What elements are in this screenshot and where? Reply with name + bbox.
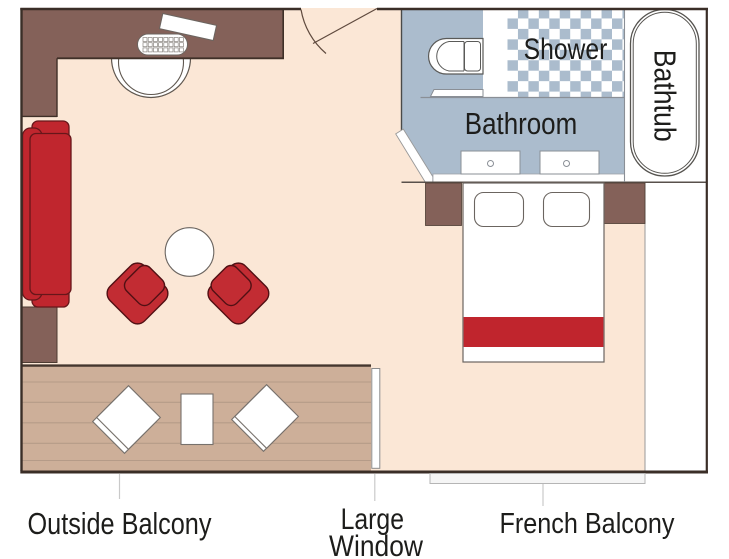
svg-text:Shower: Shower xyxy=(524,33,608,66)
svg-text:Bathtub: Bathtub xyxy=(647,50,682,142)
svg-text:Window: Window xyxy=(329,530,423,559)
svg-text:French Balcony: French Balcony xyxy=(500,508,675,540)
svg-text:Outside Balcony: Outside Balcony xyxy=(28,506,213,541)
svg-text:Bathroom: Bathroom xyxy=(465,106,577,141)
